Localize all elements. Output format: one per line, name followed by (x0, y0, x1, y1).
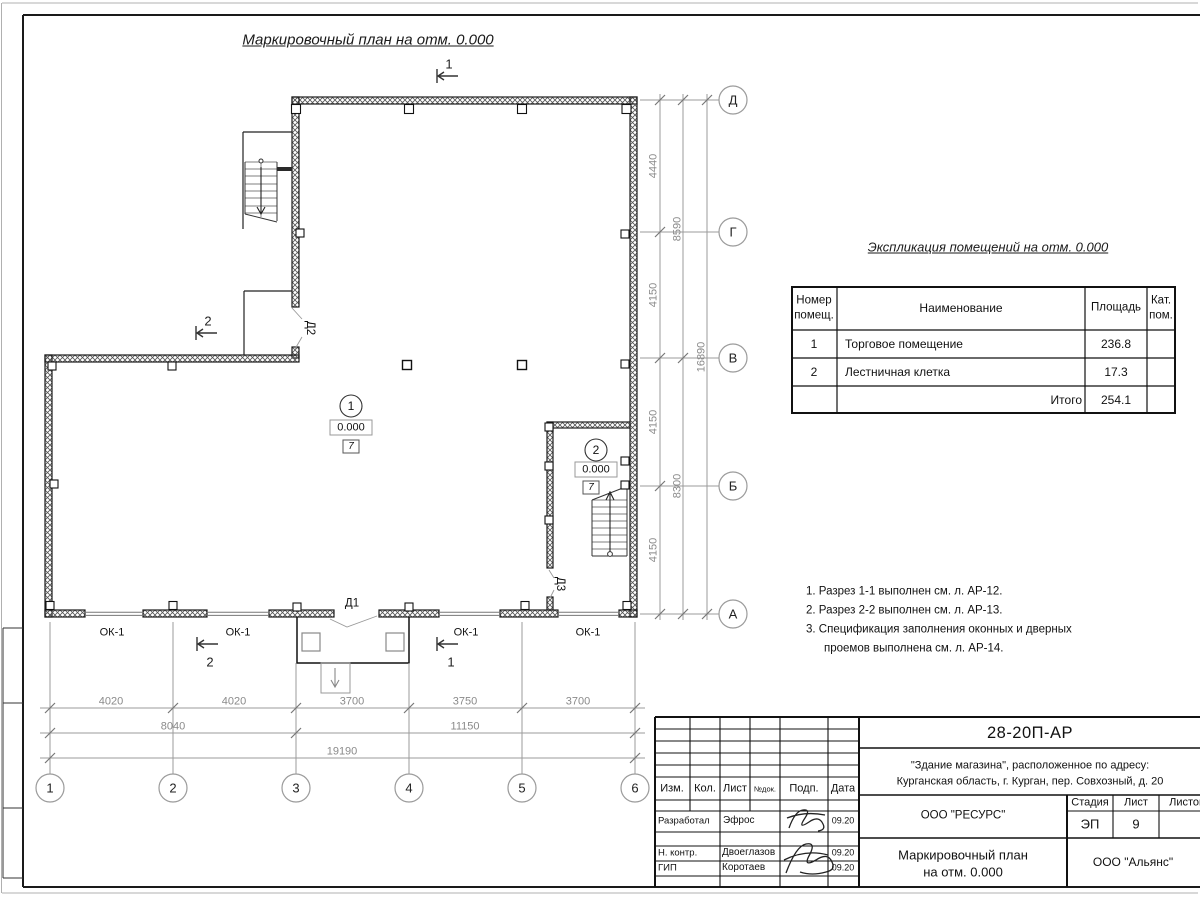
tb-col-data: Дата (831, 784, 855, 795)
axis-bubbles-bottom (36, 774, 649, 802)
door-label-d2: Д2 (303, 321, 315, 335)
doc-number: 28-20П-АР (987, 725, 1073, 742)
axis-label: 3 (292, 782, 299, 795)
org-client: ООО "Альянс" (1093, 856, 1173, 868)
dim-value: 4150 (649, 283, 660, 307)
tb-col-podp: Подп. (789, 784, 818, 795)
spec-col-cat: Кат. (1151, 295, 1171, 307)
spec-title: Экспликация помещений на отм. 0.000 (868, 241, 1108, 254)
project-name-line2: Курганская область, г. Курган, пер. Совх… (897, 777, 1164, 788)
dim-value: 16890 (697, 342, 708, 373)
tb-col-kol: Кол. (694, 784, 716, 795)
spec-cell: 236.8 (1101, 338, 1131, 350)
tb-sheets-header: Листов (1169, 798, 1200, 809)
spec-cell: 17.3 (1104, 366, 1127, 378)
axis-label: 4 (405, 782, 412, 795)
section-label: 2 (206, 656, 213, 669)
spec-total-label: Итого (1051, 394, 1082, 406)
dim-value: 4020 (99, 697, 123, 708)
dim-value: 4150 (649, 410, 660, 434)
room-number: 2 (593, 444, 600, 456)
axis-label: В (729, 352, 738, 365)
exterior-stair (245, 159, 292, 222)
spec-cell: 1 (811, 338, 818, 350)
spec-col-num: Номер (796, 295, 831, 307)
drawing-name-line2: на отм. 0.000 (923, 866, 1003, 879)
axis-label: 6 (631, 782, 638, 795)
room-floor-type: 7 (588, 483, 594, 493)
dim-value: 8040 (161, 722, 185, 733)
dim-value: 19190 (327, 747, 358, 758)
room-elevation: 0.000 (337, 423, 365, 434)
axis-label: А (729, 608, 738, 621)
exit-arrow (331, 668, 339, 687)
spec-col-name: Наименование (919, 302, 1002, 314)
dim-value: 3750 (453, 697, 477, 708)
drawing-sheet: Маркировочный план на отм. 0.000 Эксплик… (0, 0, 1200, 900)
dim-value: 8590 (673, 217, 684, 241)
landing-slab (277, 167, 292, 171)
note-line: проемов выполнена см. л. АР-14. (824, 643, 1003, 655)
dim-value: 4150 (649, 538, 660, 562)
axis-label: 5 (518, 782, 525, 795)
spec-total-value: 254.1 (1101, 394, 1131, 406)
dim-value: 3700 (340, 697, 364, 708)
drawing-name-line1: Маркировочный план (898, 849, 1028, 862)
door-leaders (292, 308, 554, 627)
left-stamp-boxes (3, 628, 23, 878)
door-label-d1: Д1 (345, 598, 359, 610)
window-label: ОК-1 (454, 628, 479, 639)
tb-sheet-header: Лист (1124, 798, 1148, 809)
tb-stage-value: ЭП (1081, 818, 1100, 831)
tb-date: 09.20 (832, 817, 855, 826)
axis-label: Б (729, 480, 738, 493)
axis-label: Д (729, 94, 738, 107)
signature-2 (786, 844, 833, 874)
room-markers (330, 395, 617, 494)
tb-stage-header: Стадия (1071, 798, 1109, 809)
tb-date: 09.20 (832, 849, 855, 858)
tb-name: Двоеглазов (722, 848, 775, 858)
walls (45, 97, 637, 617)
entrance-vestibule (297, 617, 409, 693)
note-line: 3. Спецификация заполнения оконных и две… (806, 624, 1072, 636)
annex-walls (243, 132, 292, 355)
door-label-d3: Д3 (553, 577, 565, 591)
spec-cell: Лестничная клетка (845, 366, 950, 378)
spec-col-area: Площадь (1091, 302, 1141, 314)
signature-2 (784, 853, 828, 860)
dim-value: 4440 (649, 154, 660, 178)
axis-label: 1 (46, 782, 53, 795)
spec-cell: 2 (811, 366, 818, 378)
dim-value: 3700 (566, 697, 590, 708)
tb-col-ndok: №док. (754, 785, 776, 793)
tb-name: Коротаев (722, 863, 765, 873)
vestibule-column (302, 633, 320, 651)
window-label: ОК-1 (100, 628, 125, 639)
note-line: 1. Разрез 1-1 выполнен см. л. АР-12. (806, 586, 1003, 598)
dimensions-bottom (36, 622, 649, 802)
signatures (784, 810, 833, 874)
spec-col-cat: пом. (1149, 310, 1173, 322)
room-elevation: 0.000 (582, 465, 610, 476)
plan-title: Маркировочный план на отм. 0.000 (242, 33, 493, 48)
sheet-frame (23, 15, 1200, 887)
free-columns (403, 361, 527, 370)
section-label: 2 (204, 315, 211, 328)
window-label: ОК-1 (576, 628, 601, 639)
tb-name: Эфрос (723, 816, 755, 826)
note-line: 2. Разрез 2-2 выполнен см. л. АР-13. (806, 605, 1003, 617)
tb-date: 09.20 (832, 864, 855, 873)
tb-col-izm: Изм. (660, 784, 684, 795)
axis-label: Г (729, 226, 736, 239)
window-label: ОК-1 (226, 628, 251, 639)
section-label: 1 (447, 656, 454, 669)
tb-role: Н. контр. (658, 848, 697, 858)
vestibule-column (386, 633, 404, 651)
dim-value: 8300 (673, 474, 684, 498)
axis-label: 2 (169, 782, 176, 795)
tb-sheet-value: 9 (1132, 818, 1139, 831)
room-number: 1 (348, 400, 355, 412)
stairwell-stair (592, 486, 628, 556)
section-label: 1 (445, 58, 452, 71)
dim-value: 4020 (222, 697, 246, 708)
org-designer: ООО "РЕСУРС" (921, 810, 1006, 822)
room-floor-type: 7 (348, 442, 354, 452)
tb-role: Разработал (658, 816, 710, 826)
project-name-line1: "Здание магазина", расположенное по адре… (911, 761, 1149, 772)
spec-col-num: помещ. (794, 310, 834, 322)
tb-role: ГИП (658, 863, 677, 873)
spec-cell: Торговое помещение (845, 338, 963, 350)
tb-col-list: Лист (723, 784, 747, 795)
dim-value: 11150 (451, 722, 480, 733)
